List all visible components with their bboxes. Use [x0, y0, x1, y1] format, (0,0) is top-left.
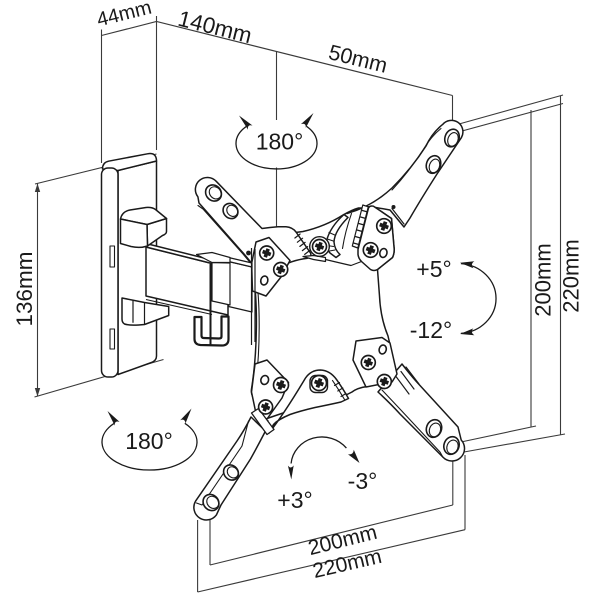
- svg-text:-12°: -12°: [410, 317, 452, 343]
- svg-text:220mm: 220mm: [559, 239, 584, 312]
- svg-text:200mm: 200mm: [531, 243, 556, 316]
- svg-text:+3°: +3°: [277, 487, 312, 513]
- svg-text:180°: 180°: [125, 428, 173, 454]
- svg-text:136mm: 136mm: [12, 251, 37, 326]
- svg-text:180°: 180°: [256, 129, 304, 155]
- svg-text:+5°: +5°: [416, 256, 451, 282]
- svg-text:-3°: -3°: [348, 468, 378, 494]
